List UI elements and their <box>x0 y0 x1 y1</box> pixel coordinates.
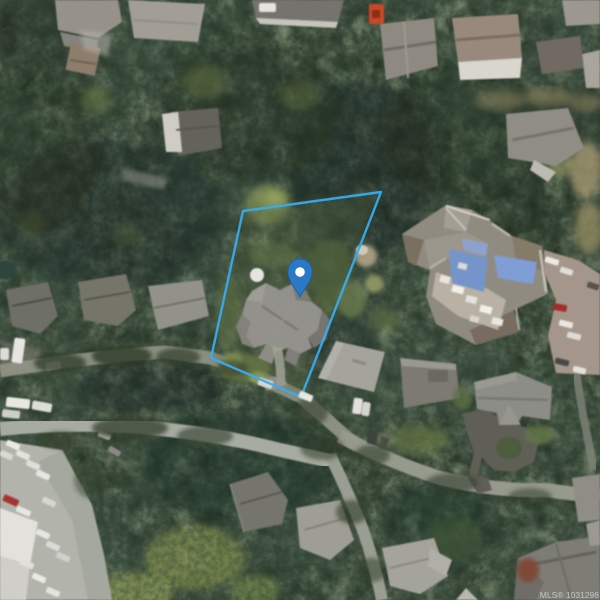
svg-text:MLS® 1031298: MLS® 1031298 <box>540 590 599 600</box>
